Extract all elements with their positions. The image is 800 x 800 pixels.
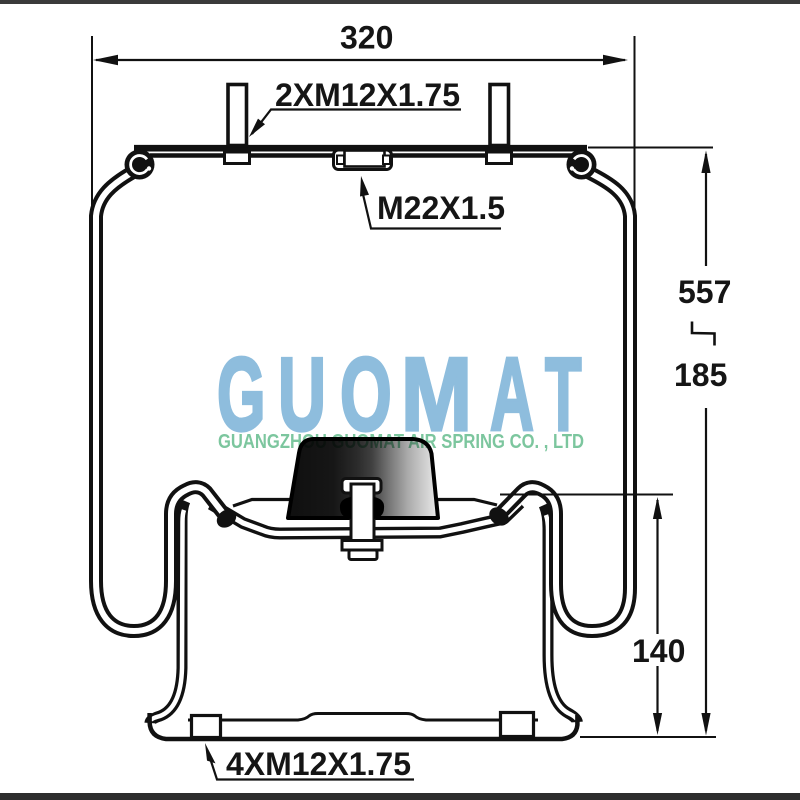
svg-text:GUANGZHOU GUOMAT AIR SPRING CO: GUANGZHOU GUOMAT AIR SPRING CO. , LTD xyxy=(218,430,584,453)
svg-text:557: 557 xyxy=(678,274,731,310)
svg-text:320: 320 xyxy=(340,20,393,56)
svg-text:4XM12X1.75: 4XM12X1.75 xyxy=(226,746,411,782)
svg-text:140: 140 xyxy=(632,633,685,669)
svg-text:2XM12X1.75: 2XM12X1.75 xyxy=(275,77,460,113)
svg-text:185: 185 xyxy=(674,357,727,393)
svg-text:M22X1.5: M22X1.5 xyxy=(377,190,505,226)
